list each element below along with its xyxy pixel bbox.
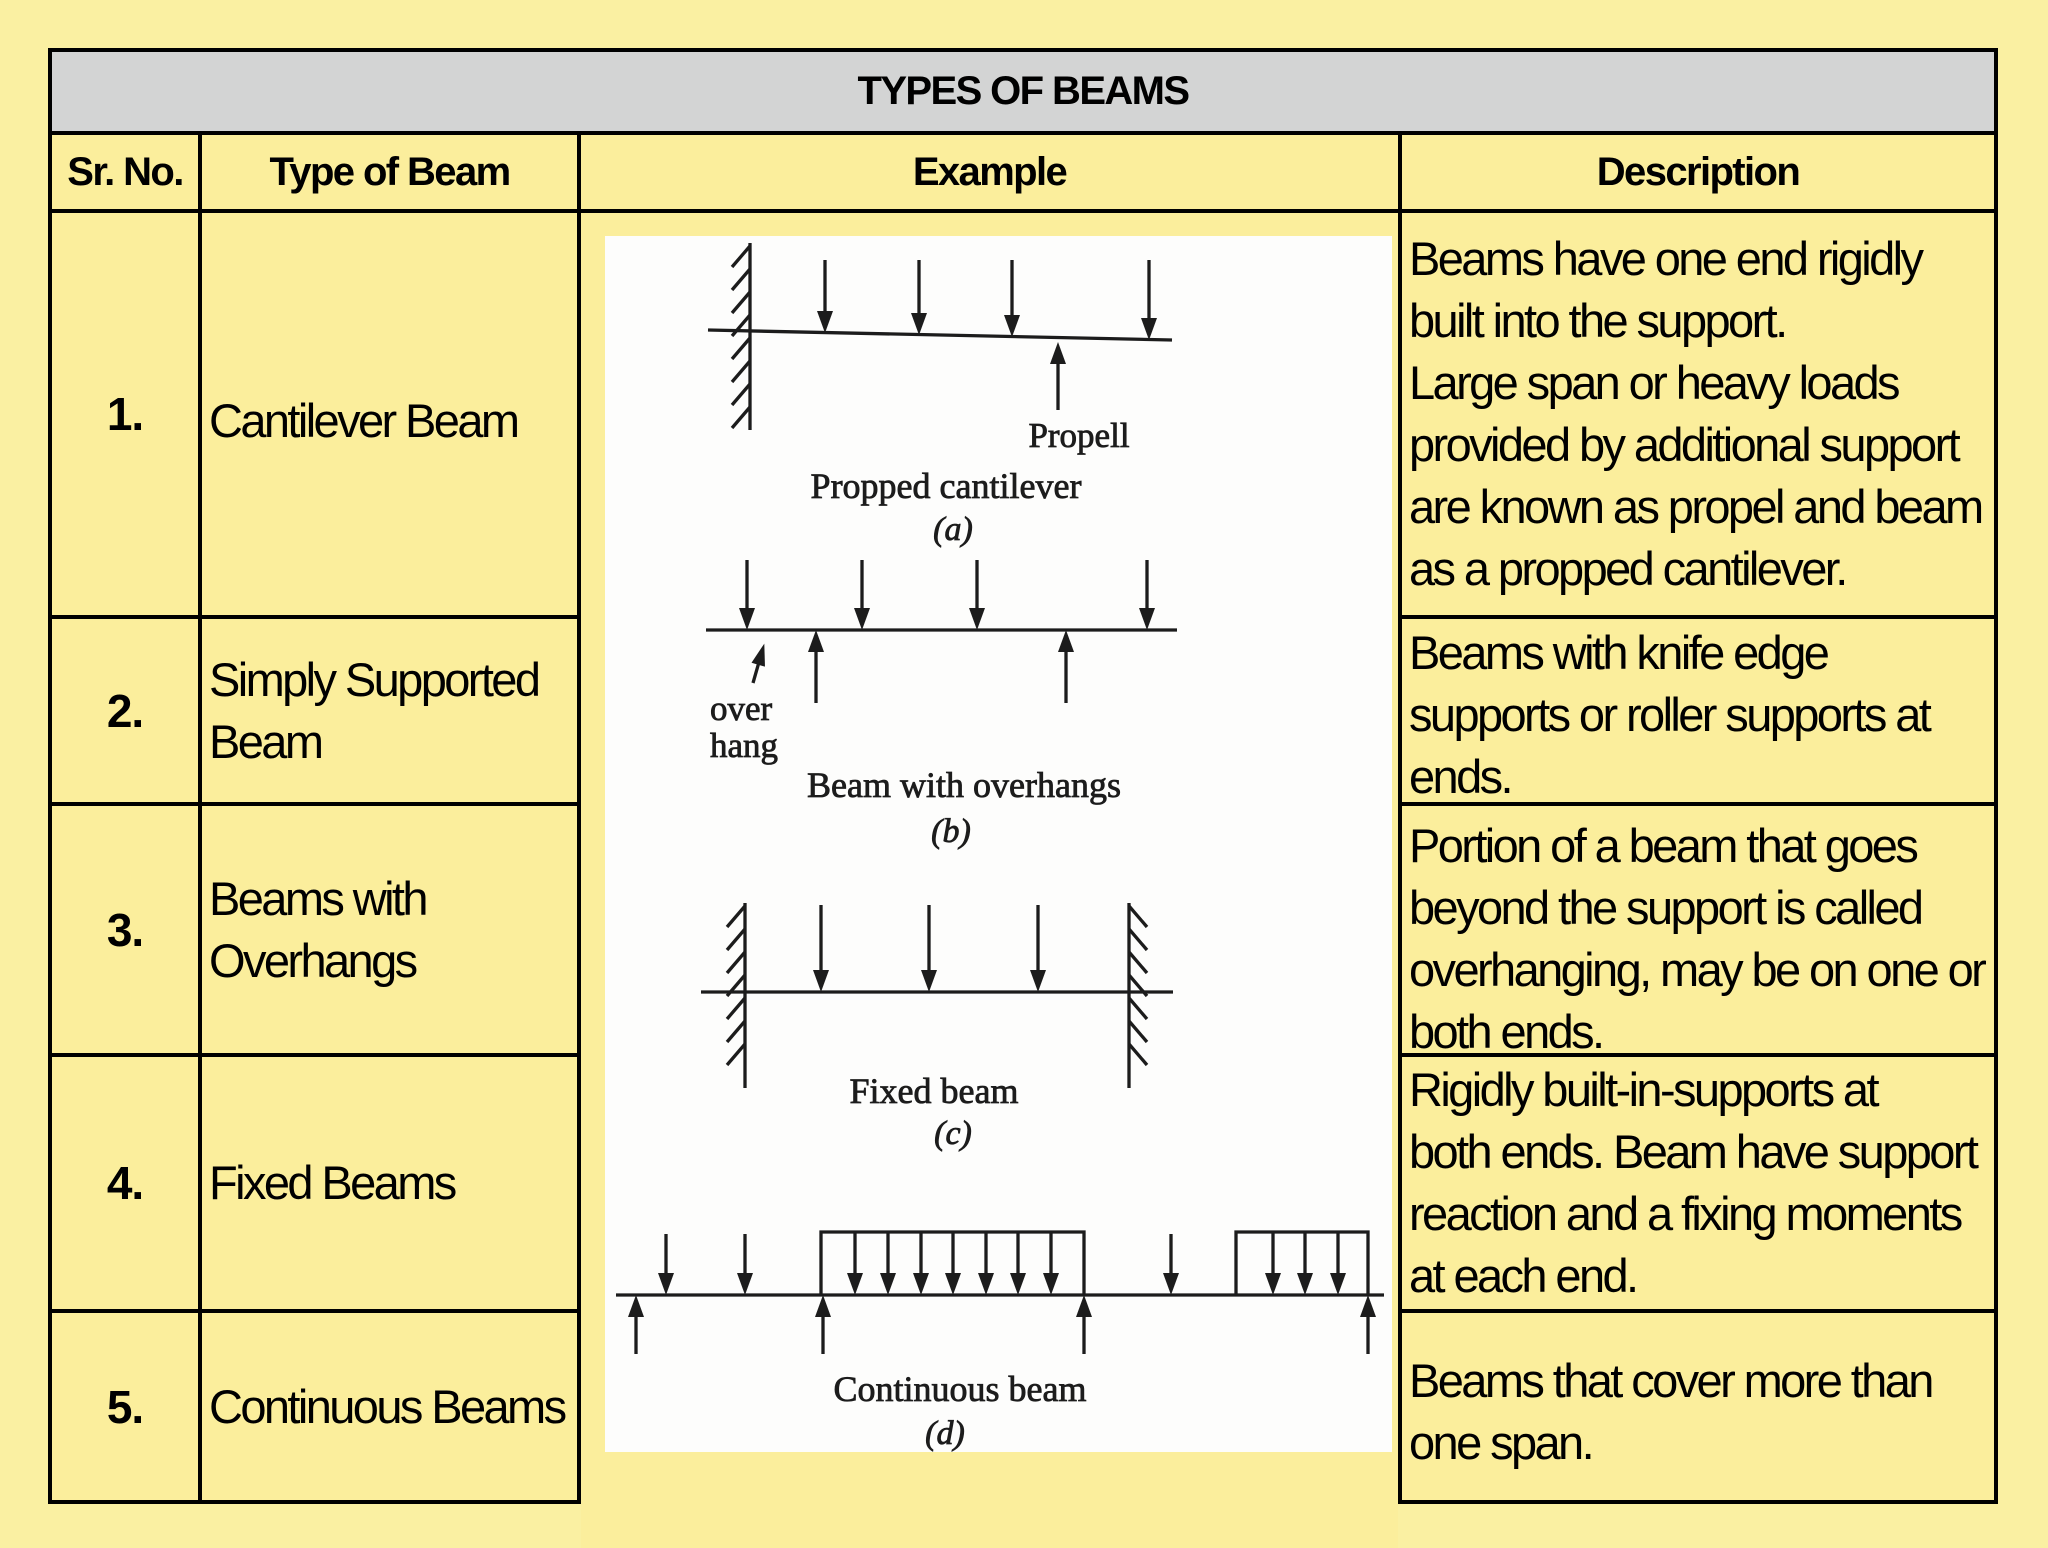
svg-text:(b): (b) (931, 813, 971, 850)
svg-text:Propell: Propell (1028, 416, 1129, 455)
svg-text:hang: hang (710, 726, 778, 765)
svg-text:Propped cantilever: Propped cantilever (811, 466, 1082, 506)
svg-text:Continuous beam: Continuous beam (834, 1369, 1087, 1409)
svg-text:(d): (d) (925, 1415, 965, 1452)
svg-text:Beam with overhangs: Beam with overhangs (807, 765, 1121, 805)
svg-text:Fixed beam: Fixed beam (850, 1071, 1019, 1111)
svg-text:(a): (a) (933, 511, 973, 548)
svg-text:over: over (710, 689, 773, 728)
svg-text:(c): (c) (934, 1115, 972, 1152)
